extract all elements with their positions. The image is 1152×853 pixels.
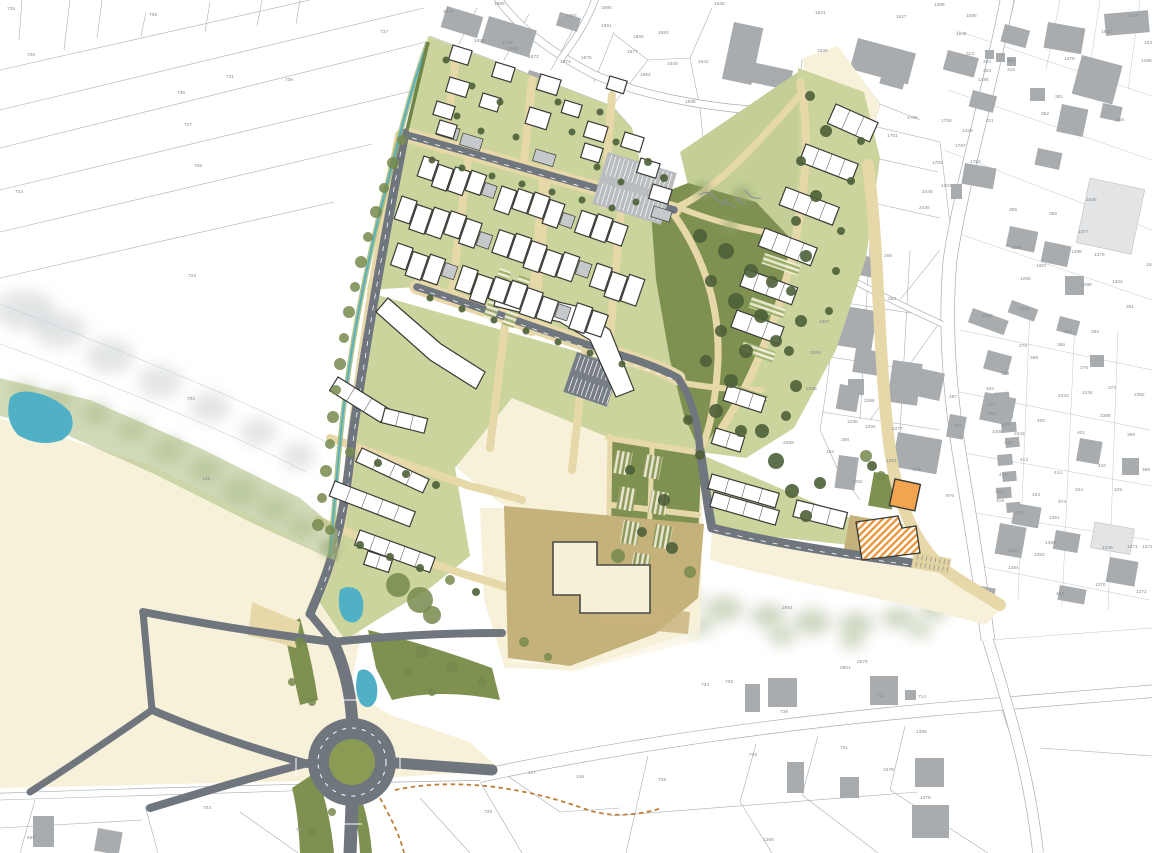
parcel-number: 1396 — [1011, 245, 1022, 251]
parcel-number: 288 — [841, 437, 849, 443]
parcel-number: 1873 — [528, 54, 539, 60]
parcel-number: 566 — [27, 835, 35, 841]
parcel-number: 362 — [1091, 329, 1099, 335]
parcel-number: 1640 — [667, 61, 678, 67]
parcel-number: 125 — [202, 476, 210, 482]
parcel-number: 363 — [1064, 329, 1072, 335]
parcel-number: 399 — [1127, 432, 1135, 438]
parcel-number: 1888 — [507, 46, 518, 52]
parcel-number: 1642 — [698, 59, 709, 65]
parcel-number: 726 — [194, 163, 202, 169]
parcel-number: 366 — [1057, 342, 1065, 348]
parcel-number: 2342 — [1014, 431, 1025, 437]
parcel-number: 1890 — [601, 5, 612, 11]
parcel-number: 737 — [380, 29, 388, 35]
parcel-number: 286 — [954, 423, 962, 429]
parcel-number: 2446 — [919, 205, 930, 211]
parcel-number: 356 — [1049, 211, 1057, 217]
parcel-number: 712 — [876, 693, 884, 699]
parcel-number: 1488 — [1081, 282, 1092, 288]
parcel-number: 1398 — [1071, 249, 1082, 255]
parcel-number: 1429 — [962, 128, 973, 134]
parcel-number: 404 — [986, 386, 994, 392]
parcel-number: 419 — [996, 498, 1004, 504]
parcel-number: 1703 — [932, 160, 943, 166]
parcel-number: 275 — [1019, 343, 1027, 349]
parcel-number: 2433 — [1058, 393, 1069, 399]
parcel-number: 976 — [946, 493, 954, 499]
parcel-number: 1621 — [815, 10, 826, 16]
parcel-number: 735 — [149, 12, 157, 18]
parcel-number: 369 — [1001, 371, 1009, 377]
parcel-number: 1626 — [1086, 197, 1097, 203]
parcel-number: 401 — [1077, 430, 1085, 436]
parcel-number: 763 — [296, 827, 304, 833]
parcel-number: 1892 — [566, 13, 577, 19]
parcel-number: 1782 — [970, 159, 981, 165]
parcel-number: 1595 — [685, 99, 696, 105]
parcel-number: 1705 — [907, 115, 918, 121]
parcel-number: 725 — [7, 6, 15, 12]
parcel-number: 1363 — [1008, 548, 1019, 554]
parcel-number: 738 — [177, 90, 185, 96]
parcel-number: 295 — [884, 253, 892, 259]
parcel-number: 424 — [1075, 487, 1083, 493]
parcel-number: 303 — [983, 68, 991, 74]
orange-highlight-building — [889, 479, 920, 511]
parcel-number: 731 — [226, 74, 234, 80]
parcel-number: 1701 — [887, 133, 898, 139]
parcel-number: 315 — [1007, 67, 1015, 73]
parcel-number: 358 — [1116, 117, 1124, 123]
parcel-number: 351 — [1055, 94, 1063, 100]
parcel-number: 2369 — [783, 440, 794, 446]
parcel-number: 1685 — [966, 13, 977, 19]
parcel-number: 306 — [1007, 58, 1015, 64]
parcel-number: 435 — [1056, 591, 1064, 597]
parcel-number: 311 — [986, 118, 994, 124]
parcel-number: 407 — [1002, 422, 1010, 428]
parcel-number: 729 — [658, 777, 666, 783]
parcel-number: 2366 — [864, 398, 875, 404]
parcel-number: 313 — [966, 51, 974, 57]
parcel-number: 1252 — [852, 479, 863, 485]
parcel-number: 702 — [187, 396, 195, 402]
parcel-number: 701 — [840, 745, 848, 751]
parcel-number: 1354 — [1019, 306, 1030, 312]
parcel-number: 1963 — [640, 72, 651, 78]
parcel-number: 304 — [983, 59, 991, 65]
parcel-number: 2277 — [892, 426, 903, 432]
parcel-number: 368 — [1030, 355, 1038, 361]
parcel-number: 1628 — [714, 1, 725, 7]
parcel-number: 147 — [528, 770, 536, 776]
parcel-number: 152 — [826, 449, 834, 455]
parcel-number: 1706 — [941, 118, 952, 124]
parcel-number: 974 — [1058, 499, 1066, 505]
parcel-number: 425 — [1114, 487, 1122, 493]
parcel-number: 146 — [576, 774, 584, 780]
parcel-number: 1375 — [1094, 252, 1105, 258]
parcel-number: 728 — [484, 809, 492, 815]
parcel-number: 2382 — [1134, 392, 1145, 398]
parcel-number: 1291 — [886, 458, 897, 464]
parcel-number: 1877 — [627, 49, 638, 55]
parcel-number: 1625 — [817, 48, 828, 54]
parcel-number: 703 — [203, 805, 211, 811]
parcel-number: 1295 — [847, 419, 858, 425]
parcel-number: 1369 — [1045, 540, 1056, 546]
parcel-number: 1895 — [494, 1, 505, 7]
parcel-number: 1875 — [581, 55, 592, 61]
parcel-number: 714 — [918, 694, 926, 700]
parcel-number: 726 — [749, 752, 757, 758]
parcel-number: 1874 — [560, 59, 571, 65]
parcel-number: 2981 — [782, 605, 793, 611]
parcel-number: 1302 — [1112, 279, 1123, 285]
parcel-number: 1787 — [955, 143, 966, 149]
parcel-number: 1896 — [474, 38, 485, 44]
parcel-number: 2386 — [1100, 413, 1111, 419]
parcel-number: 2485 — [1146, 262, 1152, 268]
parcel-number: 3970 — [443, 9, 454, 15]
parcel-number: 413 — [1020, 457, 1028, 463]
parcel-number: 1498 — [1141, 58, 1152, 64]
parcel-number: 1385 — [978, 77, 989, 83]
parcel-number: 1891 — [601, 23, 612, 29]
parcel-number: 735 — [725, 679, 733, 685]
parcel-number: 1627 — [896, 14, 907, 20]
parcel-number: 2368 — [810, 350, 821, 356]
parcel-number: 398 — [1142, 467, 1150, 473]
parcel-number: 423 — [1032, 492, 1040, 498]
parcel-number: 1294 — [865, 424, 876, 430]
parcel-number: 1883 — [658, 30, 669, 36]
parcel-number: 739 — [780, 709, 788, 715]
parcel-number: 2410 — [1128, 13, 1139, 19]
parcel-number: 1373 — [1142, 544, 1152, 550]
parcel-number: 406 — [987, 411, 995, 417]
parcel-number: 2445 — [922, 189, 933, 195]
parcel-number: 736 — [285, 77, 293, 83]
parcel-number: 374 — [1108, 385, 1116, 391]
parcel-number: 293 — [888, 296, 896, 302]
parcel-number: 470 — [1015, 510, 1023, 516]
parcel-number: 2365 — [806, 386, 817, 392]
parcel-number: 1378 — [920, 795, 931, 801]
parcel-number: 2405 — [992, 429, 1003, 435]
parcel-number: 1379 — [883, 767, 894, 773]
parcel-number: 734 — [701, 682, 709, 688]
parcel-number: 1057 — [1036, 263, 1047, 269]
parcel-number: 724 — [15, 189, 23, 195]
parcel-number: 405 — [987, 402, 995, 408]
parcel-number: 2434 — [1082, 390, 1093, 396]
parcel-number: 1377 — [1078, 229, 1089, 235]
parcel-number: 355 — [1009, 207, 1017, 213]
parcel-number: 415 — [999, 472, 1007, 478]
parcel-number: 1362 — [1034, 552, 1045, 558]
parcel-number: 1378 — [1064, 56, 1075, 62]
parcel-number: 1884 — [633, 34, 644, 40]
parcel-number: 1372 — [1136, 589, 1147, 595]
masterplan-map: 7257357287317367387277267247237377021253… — [0, 0, 1152, 853]
parcel-number: 1388 — [916, 729, 927, 735]
parcel-number: 1603 — [941, 183, 952, 189]
parcel-number: 1351 — [1049, 515, 1060, 521]
parcel-number: 1353 — [982, 313, 993, 319]
parcel-number: 400 — [1037, 418, 1045, 424]
parcel-number: 723 — [188, 273, 196, 279]
parcel-number: 1366 — [763, 837, 774, 843]
parcel-number: 352 — [1041, 111, 1049, 117]
parcel-number: 361 — [1126, 304, 1134, 310]
parcel-number: 287 — [949, 394, 957, 400]
masterplan-svg: 7257357287317367387277267247237377021253… — [0, 0, 1152, 853]
parcel-number: 975 — [913, 467, 921, 473]
parcel-number: 1962 — [1101, 29, 1112, 35]
parcel-number: 403 — [1004, 440, 1012, 446]
parcel-number: 1636 — [1144, 40, 1152, 46]
parcel-number: 1889 — [502, 40, 513, 46]
parcel-number: 727 — [184, 122, 192, 128]
parcel-number: 728 — [27, 52, 35, 58]
parcel-number: 1370 — [1095, 582, 1106, 588]
parcel-number: 376 — [1080, 365, 1088, 371]
parcel-number: 2901 — [840, 665, 851, 671]
parcel-number: 1371 — [1127, 544, 1138, 550]
parcel-number: 1386 — [934, 2, 945, 8]
parcel-number: 1349 — [1102, 545, 1113, 551]
parcel-number: 1364 — [1008, 565, 1019, 571]
parcel-number: 2367 — [819, 319, 830, 325]
parcel-number: 410 — [1098, 463, 1106, 469]
parcel-number: 1646 — [956, 31, 967, 37]
parcel-number: 418 — [995, 489, 1003, 495]
parcel-number: 1056 — [1020, 276, 1031, 282]
parcel-number: 2679 — [857, 659, 868, 665]
parcel-number: 414 — [1054, 470, 1062, 476]
